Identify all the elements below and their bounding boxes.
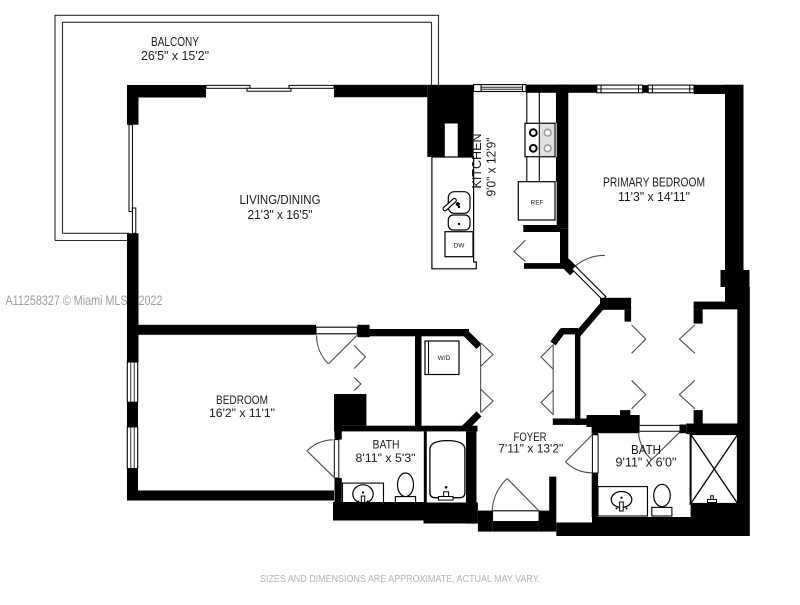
svg-text:BALCONY: BALCONY: [151, 35, 200, 49]
svg-text:8'11" x 5'3": 8'11" x 5'3": [356, 451, 416, 465]
svg-text:7'11" x 13'2": 7'11" x 13'2": [498, 442, 563, 456]
svg-text:W/D: W/D: [438, 355, 451, 362]
svg-text:21'3" x 16'5": 21'3" x 16'5": [248, 208, 313, 222]
svg-text:9'11" x 6'0": 9'11" x 6'0": [616, 456, 677, 470]
svg-text:BATH: BATH: [373, 438, 400, 452]
svg-text:LIVING/DINING: LIVING/DINING: [240, 193, 321, 207]
svg-text:11'3" x 14'11": 11'3" x 14'11": [618, 190, 690, 204]
svg-text:SIZES AND DIMENSIONS ARE APPRO: SIZES AND DIMENSIONS ARE APPROXIMATE, AC…: [260, 574, 540, 585]
svg-text:A11258327 © Miami MLS® 2022: A11258327 © Miami MLS® 2022: [6, 292, 163, 308]
svg-text:KITCHEN: KITCHEN: [470, 134, 484, 189]
svg-text:16'2" x 11'1": 16'2" x 11'1": [209, 406, 275, 420]
svg-text:DW: DW: [454, 243, 466, 250]
svg-text:PRIMARY BEDROOM: PRIMARY BEDROOM: [603, 176, 705, 190]
svg-text:REF: REF: [531, 200, 544, 207]
svg-text:BEDROOM: BEDROOM: [216, 393, 268, 407]
svg-text:26'5" x 15'2": 26'5" x 15'2": [141, 49, 209, 63]
svg-text:9'0" x 12'9": 9'0" x 12'9": [485, 138, 499, 197]
